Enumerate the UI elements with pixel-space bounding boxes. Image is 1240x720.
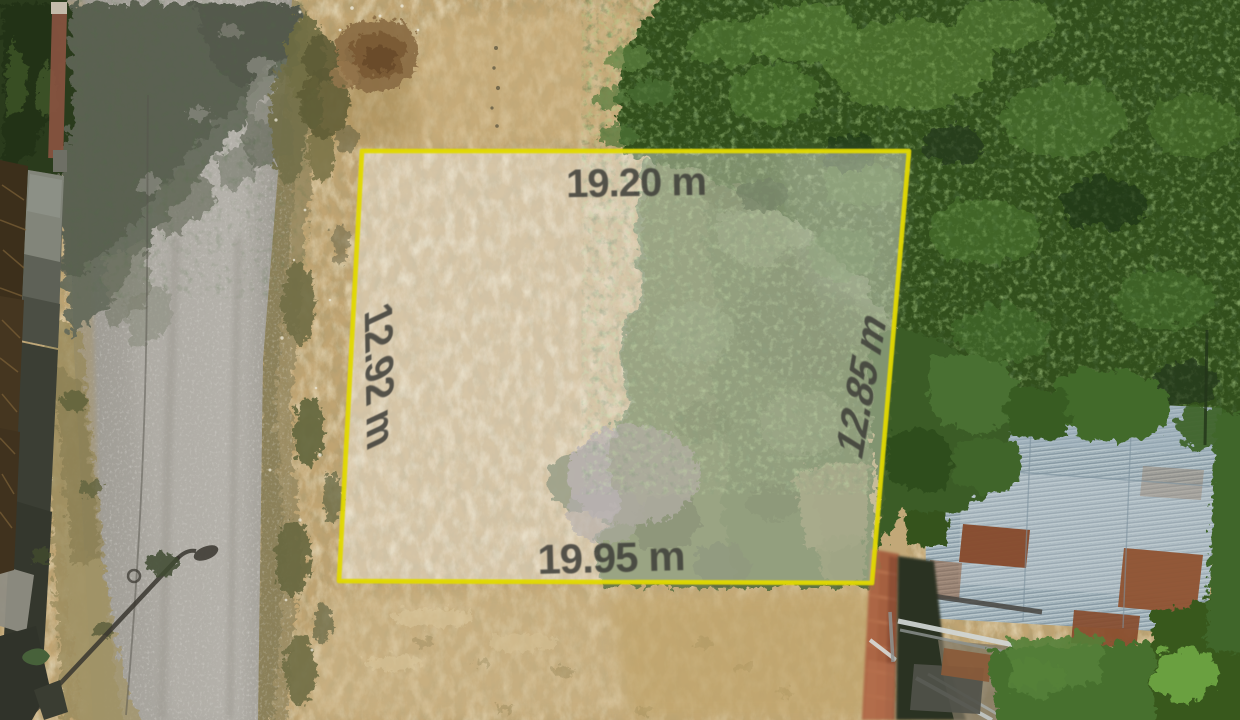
svg-text:19.95 m: 19.95 m: [537, 532, 685, 583]
svg-text:12.92 m: 12.92 m: [356, 295, 403, 455]
svg-text:19.20 m: 19.20 m: [566, 160, 707, 206]
